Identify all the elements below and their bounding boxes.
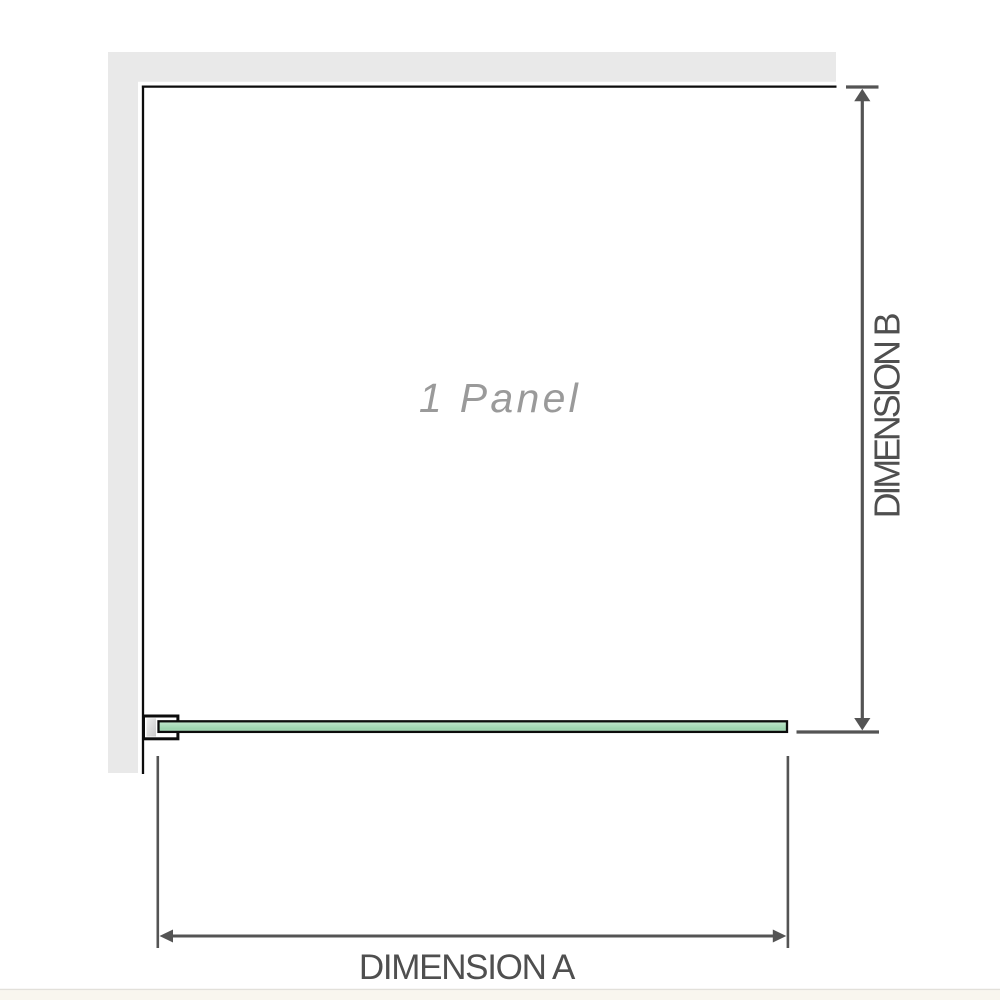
- svg-text:DIMENSION A: DIMENSION A: [359, 948, 576, 987]
- svg-text:DIMENSION B: DIMENSION B: [867, 313, 908, 518]
- svg-text:1 Panel: 1 Panel: [419, 375, 581, 421]
